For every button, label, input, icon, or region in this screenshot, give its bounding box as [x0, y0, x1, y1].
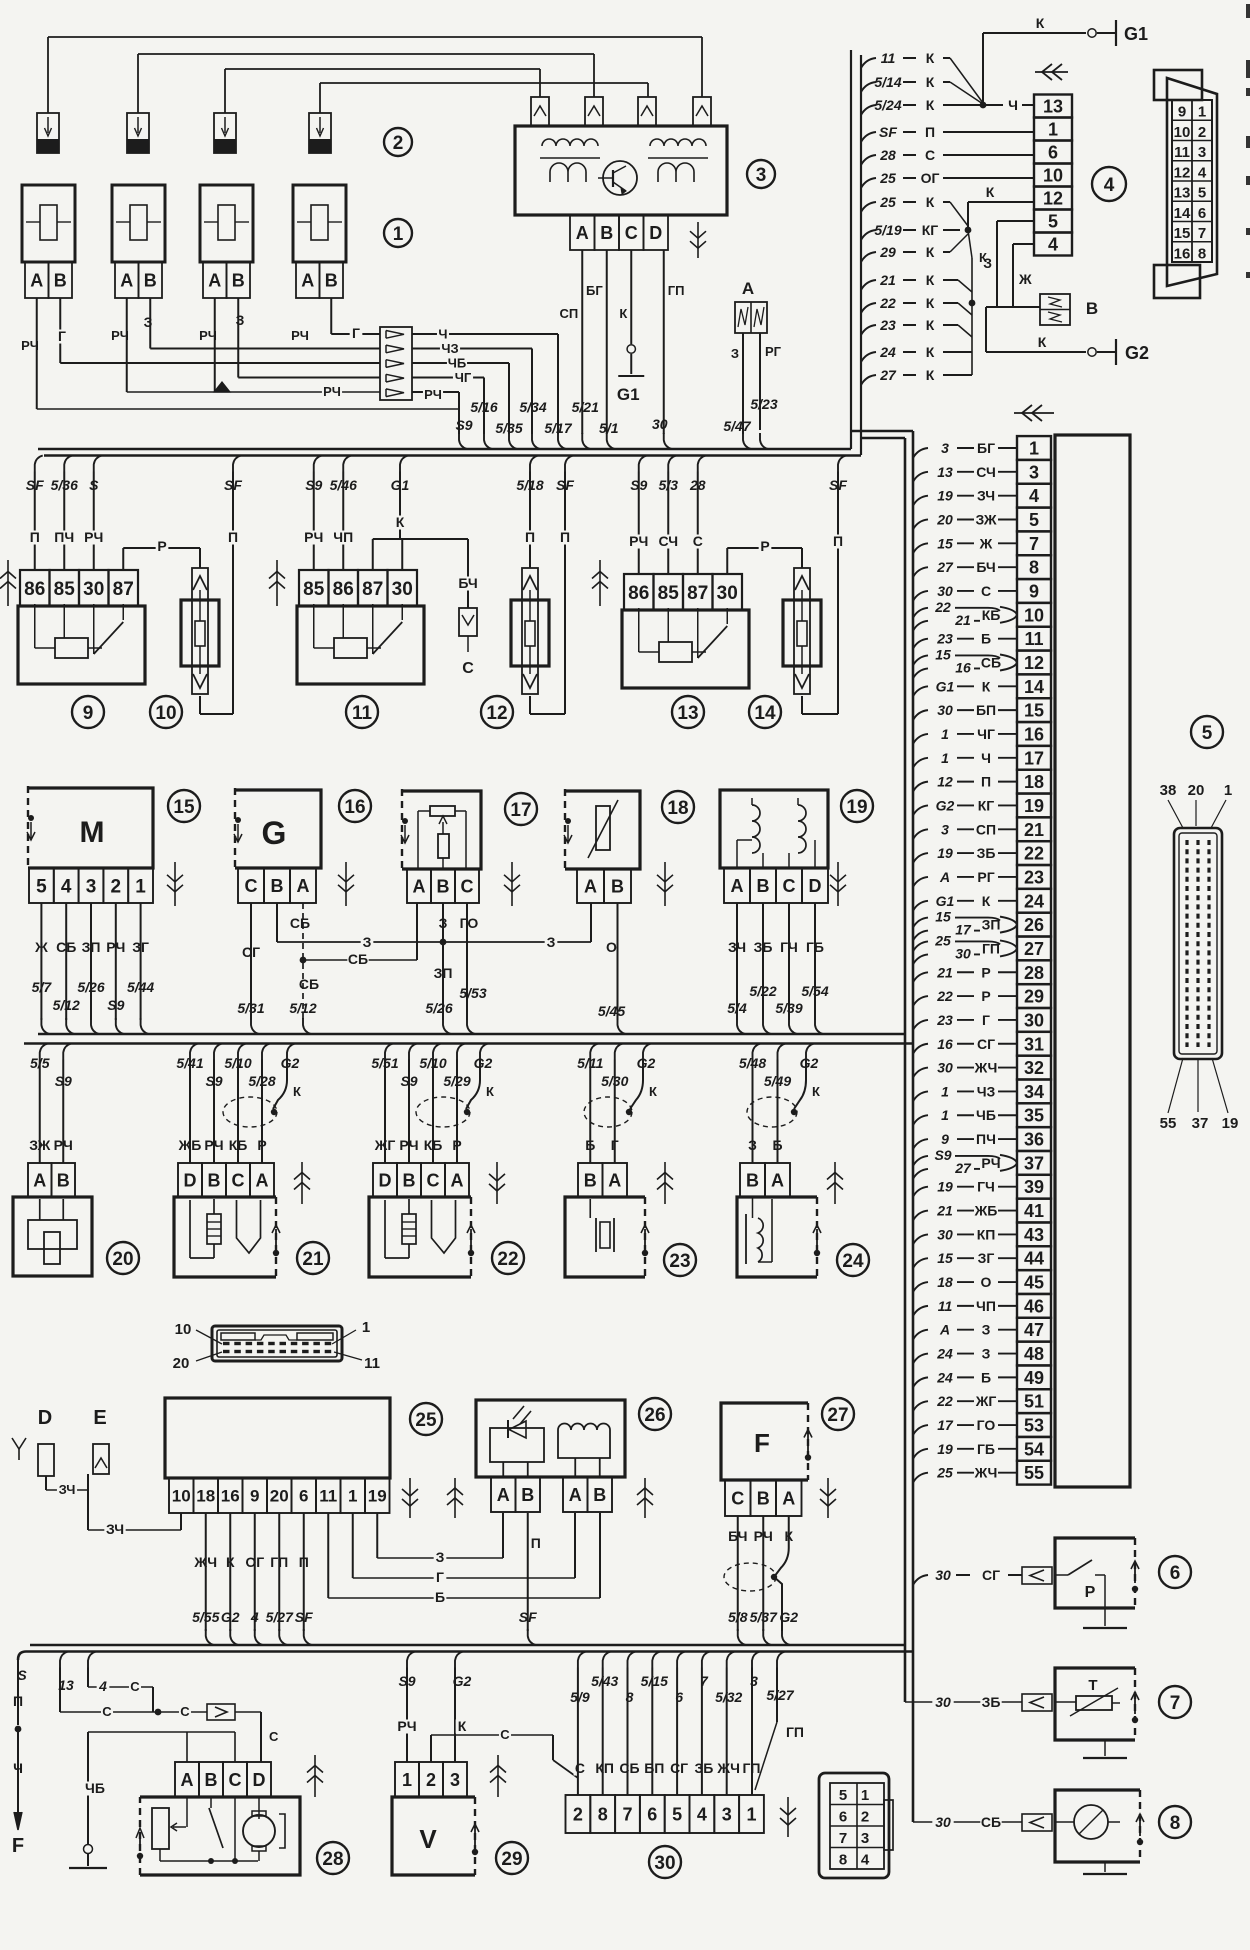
svg-text:5/12: 5/12 [53, 997, 80, 1013]
svg-text:24: 24 [842, 1251, 864, 1272]
svg-text:1: 1 [135, 876, 146, 897]
svg-text:30: 30 [955, 945, 971, 961]
svg-text:14: 14 [1174, 205, 1191, 222]
svg-text:К: К [982, 893, 991, 909]
svg-text:5/3: 5/3 [659, 477, 679, 493]
svg-text:А: А [297, 876, 310, 896]
svg-text:К: К [926, 367, 935, 383]
svg-text:37: 37 [1024, 1153, 1044, 1173]
svg-text:А: А [939, 869, 950, 885]
svg-text:30: 30 [654, 1853, 675, 1874]
svg-text:ЧЗ: ЧЗ [977, 1083, 996, 1099]
svg-text:G2: G2 [221, 1609, 240, 1625]
svg-text:13: 13 [677, 703, 698, 724]
svg-text:6: 6 [647, 1804, 657, 1824]
svg-text:15: 15 [1174, 225, 1191, 242]
svg-text:19: 19 [846, 797, 867, 818]
svg-text:СБ: СБ [290, 915, 310, 931]
svg-text:30: 30 [652, 416, 668, 432]
svg-text:РЧ: РЧ [54, 1137, 73, 1153]
svg-text:5/43: 5/43 [591, 1673, 618, 1689]
svg-text:В: В [757, 876, 770, 896]
svg-text:22: 22 [497, 1249, 518, 1270]
svg-text:Ж: Ж [34, 939, 48, 955]
svg-text:В: В [232, 270, 245, 290]
svg-text:30: 30 [937, 1226, 953, 1242]
svg-text:ЗЖ: ЗЖ [975, 511, 996, 527]
svg-text:30: 30 [937, 583, 953, 599]
svg-text:5/26: 5/26 [425, 1000, 452, 1016]
svg-text:19: 19 [937, 845, 953, 861]
svg-text:К: К [619, 306, 627, 321]
svg-text:4: 4 [861, 1852, 870, 1869]
svg-text:S9: S9 [934, 1147, 951, 1163]
svg-text:G2: G2 [800, 1055, 819, 1071]
svg-text:7: 7 [1170, 1693, 1181, 1714]
svg-text:11: 11 [938, 1298, 953, 1314]
svg-text:23: 23 [936, 1012, 953, 1028]
svg-text:РЧ: РЧ [399, 1137, 418, 1153]
svg-text:3: 3 [722, 1804, 732, 1824]
svg-text:5/31: 5/31 [237, 1000, 264, 1016]
svg-text:28: 28 [879, 147, 896, 163]
svg-text:СБ: СБ [981, 654, 1001, 670]
svg-text:15: 15 [173, 797, 195, 818]
svg-text:D: D [253, 1770, 266, 1790]
svg-text:БП: БП [644, 1760, 664, 1776]
svg-text:12: 12 [1024, 653, 1044, 673]
svg-text:Б: Б [772, 1137, 782, 1153]
svg-text:Г: Г [352, 325, 360, 341]
svg-text:ГБ: ГБ [806, 939, 824, 955]
svg-text:В: В [144, 270, 157, 290]
svg-text:К: К [226, 1554, 235, 1570]
svg-text:5: 5 [36, 876, 47, 897]
svg-text:П: П [30, 529, 40, 545]
svg-text:3: 3 [1029, 462, 1039, 482]
svg-text:С: С [102, 1704, 112, 1719]
svg-text:5/55: 5/55 [192, 1609, 219, 1625]
svg-text:30: 30 [392, 579, 413, 600]
svg-text:5: 5 [1198, 185, 1206, 202]
svg-text:З: З [439, 915, 448, 931]
svg-text:6: 6 [1048, 143, 1058, 163]
svg-text:4: 4 [1048, 235, 1058, 255]
svg-text:ЖЧ: ЖЧ [974, 1465, 998, 1481]
svg-text:А: А [256, 1170, 269, 1190]
svg-text:5/48: 5/48 [739, 1055, 766, 1071]
svg-text:В: В [271, 876, 284, 896]
svg-text:СГ: СГ [977, 1036, 995, 1052]
svg-text:ГП: ГП [786, 1724, 804, 1740]
svg-text:18: 18 [937, 1274, 953, 1290]
svg-text:СБ: СБ [56, 939, 76, 955]
svg-text:5/26: 5/26 [77, 979, 104, 995]
svg-text:G2: G2 [281, 1055, 300, 1071]
svg-text:СЧ: СЧ [658, 533, 678, 549]
svg-text:В: В [54, 270, 67, 290]
svg-text:РЧ: РЧ [204, 1137, 223, 1153]
svg-text:Ж: Ж [979, 535, 993, 551]
svg-text:1: 1 [941, 1083, 949, 1099]
svg-text:Г: Г [436, 1569, 444, 1585]
svg-text:Р: Р [452, 1137, 461, 1153]
svg-text:5/54: 5/54 [801, 983, 828, 999]
svg-text:G1: G1 [936, 893, 955, 909]
svg-text:SF: SF [295, 1609, 313, 1625]
svg-text:1: 1 [1224, 782, 1232, 799]
svg-text:27: 27 [1024, 939, 1044, 959]
svg-text:РЧ: РЧ [304, 529, 323, 545]
svg-text:ЗЧ: ЗЧ [59, 1482, 76, 1497]
svg-text:17: 17 [510, 800, 531, 821]
svg-text:К: К [812, 1084, 820, 1099]
svg-text:21: 21 [936, 964, 953, 980]
svg-text:А: А [33, 1170, 46, 1190]
svg-text:27: 27 [827, 1405, 848, 1426]
svg-text:5/7: 5/7 [32, 979, 53, 995]
svg-text:23: 23 [669, 1251, 690, 1272]
svg-text:3: 3 [86, 876, 97, 897]
svg-text:С: С [269, 1729, 279, 1744]
svg-text:20: 20 [173, 1355, 190, 1372]
svg-text:ЗГ: ЗГ [978, 1250, 995, 1266]
svg-text:85: 85 [303, 579, 325, 600]
svg-text:30: 30 [937, 1060, 953, 1076]
svg-text:А: А [731, 876, 744, 896]
svg-text:ЗП: ЗП [982, 917, 1001, 933]
svg-text:А: А [413, 876, 426, 896]
svg-text:S9: S9 [205, 1073, 222, 1089]
svg-text:Ж: Ж [1018, 271, 1032, 287]
svg-text:К: К [926, 344, 935, 360]
svg-text:К: К [458, 1718, 467, 1734]
svg-text:ЖБ: ЖБ [974, 1203, 998, 1219]
svg-text:С: С [232, 1170, 245, 1190]
svg-text:А: А [208, 270, 221, 290]
svg-text:5: 5 [1029, 510, 1039, 530]
svg-text:18: 18 [667, 798, 688, 819]
svg-text:РЧ: РЧ [111, 328, 129, 343]
svg-text:С: С [981, 583, 991, 599]
svg-text:55: 55 [1024, 1463, 1044, 1483]
svg-text:К: К [926, 295, 935, 311]
svg-text:38: 38 [1160, 782, 1177, 799]
svg-text:П: П [981, 774, 991, 790]
svg-text:1: 1 [1048, 120, 1058, 140]
svg-text:D: D [184, 1170, 197, 1190]
svg-text:П: П [925, 124, 935, 140]
svg-text:G1: G1 [617, 385, 640, 404]
svg-text:П: П [13, 1693, 23, 1709]
svg-text:9: 9 [250, 1487, 259, 1506]
svg-text:25: 25 [934, 932, 951, 948]
svg-text:G: G [262, 815, 287, 851]
svg-text:5/28: 5/28 [248, 1073, 275, 1089]
svg-text:7: 7 [700, 1673, 709, 1689]
svg-text:SF: SF [829, 477, 847, 493]
svg-text:F: F [12, 1835, 24, 1857]
svg-text:5/27: 5/27 [766, 1687, 794, 1703]
svg-text:17: 17 [955, 922, 972, 938]
svg-text:3: 3 [861, 1830, 869, 1847]
svg-text:К: К [649, 1084, 657, 1099]
svg-text:КП: КП [977, 1226, 996, 1242]
svg-text:К: К [1036, 15, 1045, 31]
svg-text:1: 1 [941, 750, 949, 766]
svg-text:30: 30 [935, 1814, 951, 1830]
svg-text:22: 22 [1024, 844, 1044, 864]
svg-text:В: В [611, 876, 624, 896]
svg-text:А: А [608, 1170, 621, 1190]
svg-text:ЗЧ: ЗЧ [728, 939, 746, 955]
svg-text:25: 25 [936, 1465, 953, 1481]
svg-text:16: 16 [937, 1036, 953, 1052]
svg-text:5/17: 5/17 [544, 420, 572, 436]
svg-text:ЧГ: ЧГ [977, 726, 995, 742]
svg-text:В: В [325, 270, 338, 290]
svg-text:Г: Г [611, 1137, 619, 1153]
svg-text:22: 22 [879, 295, 896, 311]
svg-text:29: 29 [1024, 987, 1044, 1007]
svg-text:23: 23 [1024, 867, 1044, 887]
svg-text:З: З [144, 314, 153, 330]
svg-text:К: К [1038, 334, 1047, 350]
svg-text:ЗГ: ЗГ [132, 939, 149, 955]
svg-text:13: 13 [1174, 185, 1191, 202]
svg-text:11: 11 [1174, 144, 1190, 161]
svg-text:25: 25 [879, 170, 896, 186]
svg-text:ГО: ГО [977, 1417, 996, 1433]
svg-text:36: 36 [1024, 1130, 1044, 1150]
svg-text:ПЧ: ПЧ [54, 529, 74, 545]
svg-text:39: 39 [1024, 1177, 1044, 1197]
svg-text:З: З [983, 255, 992, 271]
svg-text:ЧЗ: ЧЗ [441, 341, 458, 356]
svg-text:S9: S9 [55, 1073, 72, 1089]
svg-text:Р: Р [981, 964, 990, 980]
svg-text:В: В [57, 1170, 70, 1190]
svg-text:А: А [30, 270, 43, 290]
svg-text:85: 85 [54, 579, 76, 600]
svg-text:ЗБ: ЗБ [977, 845, 996, 861]
svg-text:РЧ: РЧ [981, 1155, 1000, 1171]
svg-text:G2: G2 [453, 1673, 472, 1689]
svg-text:С: С [229, 1770, 242, 1790]
svg-text:5/35: 5/35 [495, 420, 522, 436]
svg-text:СП: СП [560, 306, 579, 321]
svg-text:6: 6 [675, 1689, 683, 1705]
svg-text:ЖЧ: ЖЧ [974, 1060, 998, 1076]
svg-text:35: 35 [1024, 1106, 1044, 1126]
svg-text:Б: Б [585, 1137, 595, 1153]
svg-text:А: А [451, 1170, 464, 1190]
svg-text:19: 19 [937, 1179, 953, 1195]
svg-text:С: С [245, 876, 258, 896]
svg-text:ЧБ: ЧБ [976, 1107, 996, 1123]
svg-text:13: 13 [937, 464, 953, 480]
svg-text:5/44: 5/44 [127, 979, 154, 995]
svg-text:К: К [926, 244, 935, 260]
svg-text:7: 7 [1029, 534, 1039, 554]
svg-text:К: К [926, 194, 935, 210]
svg-text:ЗЧ: ЗЧ [977, 488, 995, 504]
svg-text:29: 29 [501, 1849, 522, 1870]
svg-text:ЧГ: ЧГ [455, 370, 472, 385]
svg-text:СП: СП [976, 821, 996, 837]
svg-text:48: 48 [1024, 1344, 1044, 1364]
svg-text:1: 1 [941, 726, 949, 742]
svg-text:25: 25 [879, 194, 896, 210]
svg-text:5/47: 5/47 [723, 418, 751, 434]
svg-text:5: 5 [839, 1787, 847, 1804]
svg-text:ОГ: ОГ [921, 170, 940, 186]
svg-text:РЧ: РЧ [424, 387, 442, 402]
svg-text:РЧ: РЧ [21, 338, 39, 353]
svg-text:РЧ: РЧ [291, 328, 309, 343]
svg-text:ЗП: ЗП [434, 965, 453, 981]
svg-text:В: В [403, 1170, 416, 1190]
svg-text:З: З [748, 1137, 757, 1153]
svg-text:В: В [600, 223, 613, 243]
svg-text:В: В [757, 1488, 770, 1508]
svg-text:5: 5 [1048, 212, 1058, 232]
svg-text:С: С [575, 1760, 585, 1776]
svg-text:31: 31 [1024, 1034, 1044, 1054]
svg-text:30: 30 [935, 1694, 951, 1710]
svg-text:25: 25 [415, 1410, 437, 1431]
svg-text:5/10: 5/10 [224, 1055, 251, 1071]
svg-text:З: З [436, 1549, 445, 1565]
svg-text:КГ: КГ [922, 222, 939, 238]
svg-text:К: К [926, 97, 935, 113]
svg-text:П: П [531, 1535, 541, 1551]
svg-text:4: 4 [697, 1804, 707, 1824]
svg-text:14: 14 [754, 703, 776, 724]
svg-text:РЧ: РЧ [199, 328, 217, 343]
svg-text:БЧ: БЧ [976, 559, 995, 575]
svg-text:ЗБ: ЗБ [982, 1694, 1001, 1710]
svg-text:7: 7 [622, 1804, 632, 1824]
svg-text:3: 3 [750, 1673, 758, 1689]
svg-text:ГО: ГО [460, 915, 479, 931]
svg-text:54: 54 [1024, 1439, 1044, 1459]
svg-text:БГ: БГ [977, 440, 995, 456]
svg-text:1: 1 [402, 1770, 412, 1790]
svg-text:П: П [299, 1554, 309, 1570]
svg-text:ГП: ГП [668, 283, 685, 298]
svg-text:S: S [89, 477, 99, 493]
svg-text:5/1: 5/1 [599, 420, 619, 436]
svg-text:С: С [693, 533, 703, 549]
svg-text:9: 9 [941, 1131, 949, 1147]
svg-text:В: В [584, 1170, 597, 1190]
svg-text:15: 15 [937, 1250, 953, 1266]
svg-text:G2: G2 [474, 1055, 493, 1071]
svg-text:Г: Г [58, 328, 66, 344]
svg-text:13: 13 [1043, 97, 1063, 117]
svg-text:S9: S9 [455, 417, 472, 433]
svg-text:F: F [754, 1428, 770, 1458]
svg-text:45: 45 [1024, 1273, 1044, 1293]
svg-text:ГЧ: ГЧ [977, 1179, 995, 1195]
svg-text:ГБ: ГБ [977, 1441, 995, 1457]
svg-text:SF: SF [26, 477, 44, 493]
svg-text:К: К [396, 514, 405, 530]
svg-text:8: 8 [1198, 245, 1206, 262]
svg-text:ГЧ: ГЧ [780, 939, 798, 955]
svg-text:Р: Р [1085, 1584, 1096, 1601]
svg-text:27: 27 [954, 1160, 972, 1176]
svg-text:ЗЧ: ЗЧ [106, 1521, 124, 1537]
svg-text:5/53: 5/53 [459, 985, 486, 1001]
svg-text:С: С [783, 876, 796, 896]
svg-text:С: С [427, 1170, 440, 1190]
svg-text:8: 8 [1170, 1813, 1181, 1834]
svg-text:17: 17 [1024, 748, 1044, 768]
svg-text:5/23: 5/23 [750, 396, 777, 412]
svg-text:В: В [205, 1770, 218, 1790]
svg-text:49: 49 [1024, 1368, 1044, 1388]
svg-text:10: 10 [1024, 605, 1044, 625]
svg-text:А: А [742, 279, 754, 298]
svg-text:11: 11 [352, 703, 373, 724]
svg-text:12: 12 [937, 774, 953, 790]
svg-text:СБ: СБ [981, 1814, 1001, 1830]
svg-text:ГП: ГП [270, 1554, 288, 1570]
svg-text:23: 23 [879, 317, 896, 333]
svg-text:А: А [181, 1770, 194, 1790]
svg-text:Б: Б [981, 1369, 991, 1385]
svg-text:А: А [576, 223, 589, 243]
svg-text:9: 9 [1029, 581, 1039, 601]
svg-text:Б: Б [435, 1589, 445, 1605]
svg-text:8: 8 [839, 1852, 847, 1869]
svg-text:КБ: КБ [424, 1137, 443, 1153]
svg-text:СГ: СГ [670, 1760, 688, 1776]
svg-text:28: 28 [1024, 963, 1044, 983]
svg-text:К: К [293, 1084, 301, 1099]
svg-text:ПЧ: ПЧ [976, 1131, 996, 1147]
svg-text:15: 15 [937, 535, 953, 551]
svg-text:ЖЧ: ЖЧ [193, 1554, 217, 1570]
svg-text:Г: Г [982, 1012, 990, 1028]
svg-text:11: 11 [1024, 629, 1043, 649]
svg-text:6: 6 [1170, 1563, 1181, 1584]
svg-text:D: D [809, 876, 822, 896]
svg-text:16: 16 [1024, 724, 1044, 744]
svg-text:13: 13 [58, 1677, 74, 1693]
svg-text:5/39: 5/39 [775, 1000, 802, 1016]
svg-text:5: 5 [672, 1804, 682, 1824]
svg-text:30: 30 [83, 579, 104, 600]
svg-text:41: 41 [1024, 1201, 1044, 1221]
svg-text:З: З [731, 346, 739, 361]
svg-text:27: 27 [936, 559, 954, 575]
svg-text:47: 47 [1024, 1320, 1044, 1340]
svg-text:З: З [547, 934, 556, 950]
svg-text:РЧ: РЧ [397, 1718, 416, 1734]
svg-text:S9: S9 [305, 477, 322, 493]
svg-text:19: 19 [1222, 1115, 1239, 1132]
svg-text:G1: G1 [391, 477, 410, 493]
svg-text:РЧ: РЧ [323, 384, 341, 399]
svg-text:А: А [301, 270, 314, 290]
svg-text:4: 4 [98, 1678, 107, 1694]
svg-text:5/19: 5/19 [874, 222, 901, 238]
svg-text:7: 7 [1198, 225, 1206, 242]
svg-text:1: 1 [393, 224, 404, 245]
